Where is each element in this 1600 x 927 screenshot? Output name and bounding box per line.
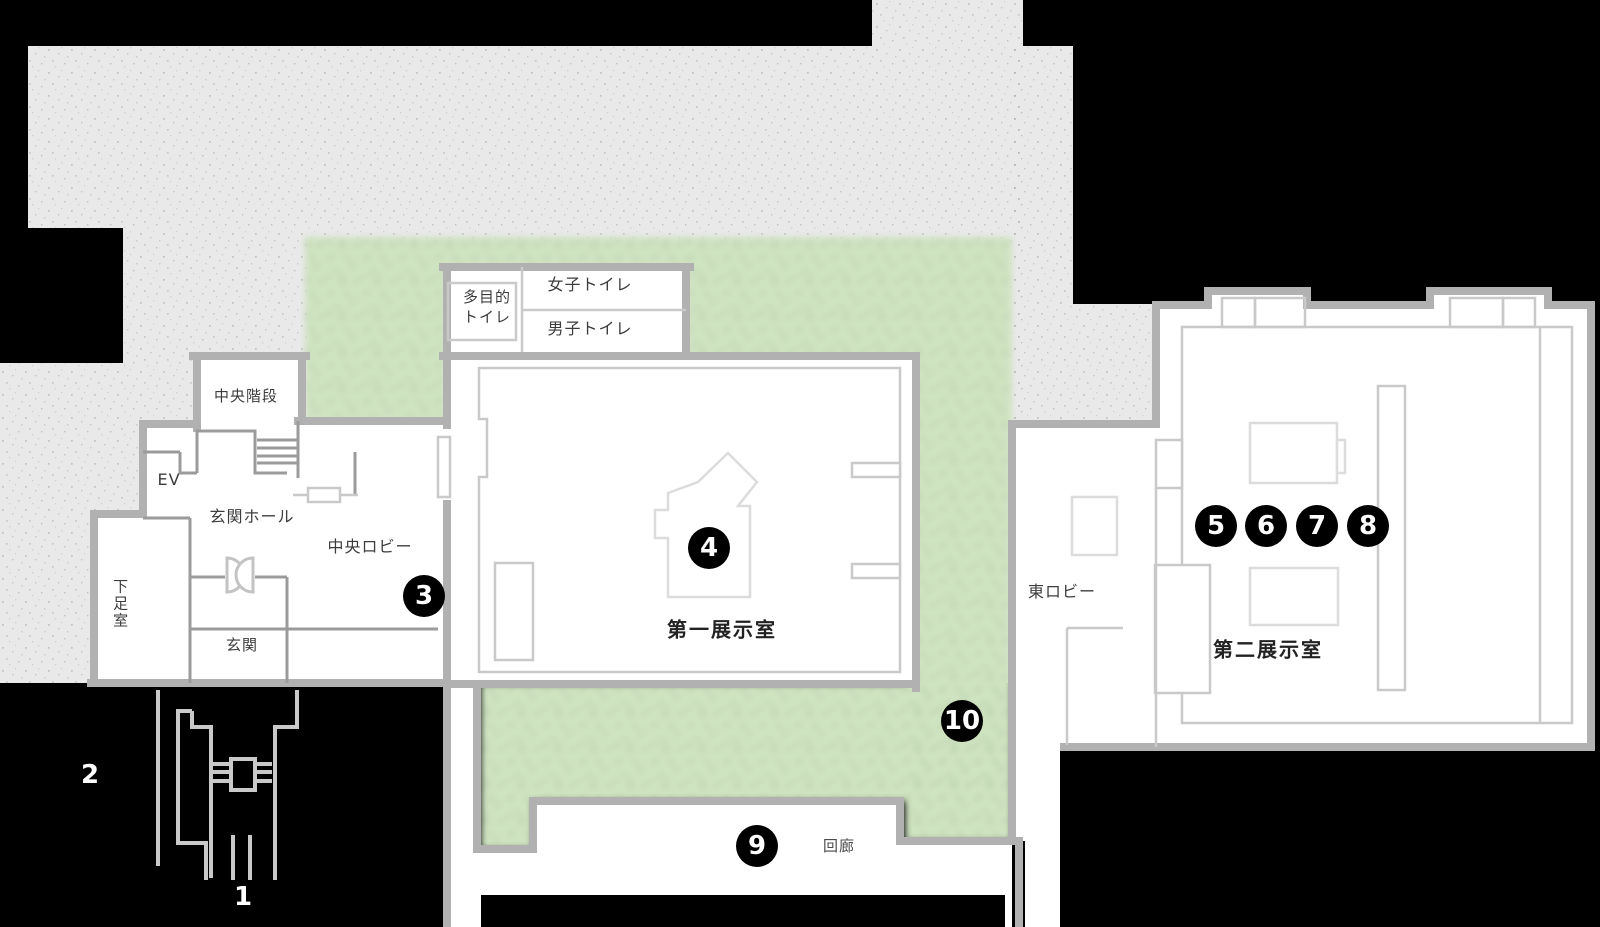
museum-map: 多目的 トイレ 女子トイレ 男子トイレ 中央階段 EV 玄関ホール 下足室 玄関… xyxy=(0,0,1600,927)
marker-8[interactable]: 8 xyxy=(1347,505,1389,547)
label-central-stairs: 中央階段 xyxy=(214,386,278,406)
marker-3[interactable]: 3 xyxy=(403,575,445,617)
label-mens-toilet: 男子トイレ xyxy=(547,318,632,340)
label-womens-toilet: 女子トイレ xyxy=(547,274,632,296)
marker-4[interactable]: 4 xyxy=(688,527,730,569)
label-elevator: EV xyxy=(157,469,180,491)
approach-path xyxy=(158,690,297,880)
marker-7[interactable]: 7 xyxy=(1296,505,1338,547)
label-entrance-hall: 玄関ホール xyxy=(209,506,294,528)
label-multipurpose-toilet: 多目的 トイレ xyxy=(463,287,511,328)
label-exhibition-room-1: 第一展示室 xyxy=(667,617,777,644)
marker-10[interactable]: 10 xyxy=(941,700,983,742)
label-exhibition-room-2: 第二展示室 xyxy=(1213,637,1323,664)
label-entrance: 玄関 xyxy=(226,635,258,655)
marker-5[interactable]: 5 xyxy=(1195,505,1237,547)
label-shoe-room: 下足室 xyxy=(110,579,130,630)
marker-2[interactable]: 2 xyxy=(81,760,99,790)
label-east-lobby: 東ロビー xyxy=(1028,581,1096,603)
marker-6[interactable]: 6 xyxy=(1245,505,1287,547)
marker-9[interactable]: 9 xyxy=(736,825,778,867)
floorplan-svg xyxy=(0,0,1600,927)
corridor-opening xyxy=(481,895,1005,927)
marker-1[interactable]: 1 xyxy=(234,882,252,912)
label-corridor: 回廊 xyxy=(823,836,855,856)
entrance-door-icon xyxy=(227,558,253,592)
label-central-lobby: 中央ロビー xyxy=(327,536,412,558)
